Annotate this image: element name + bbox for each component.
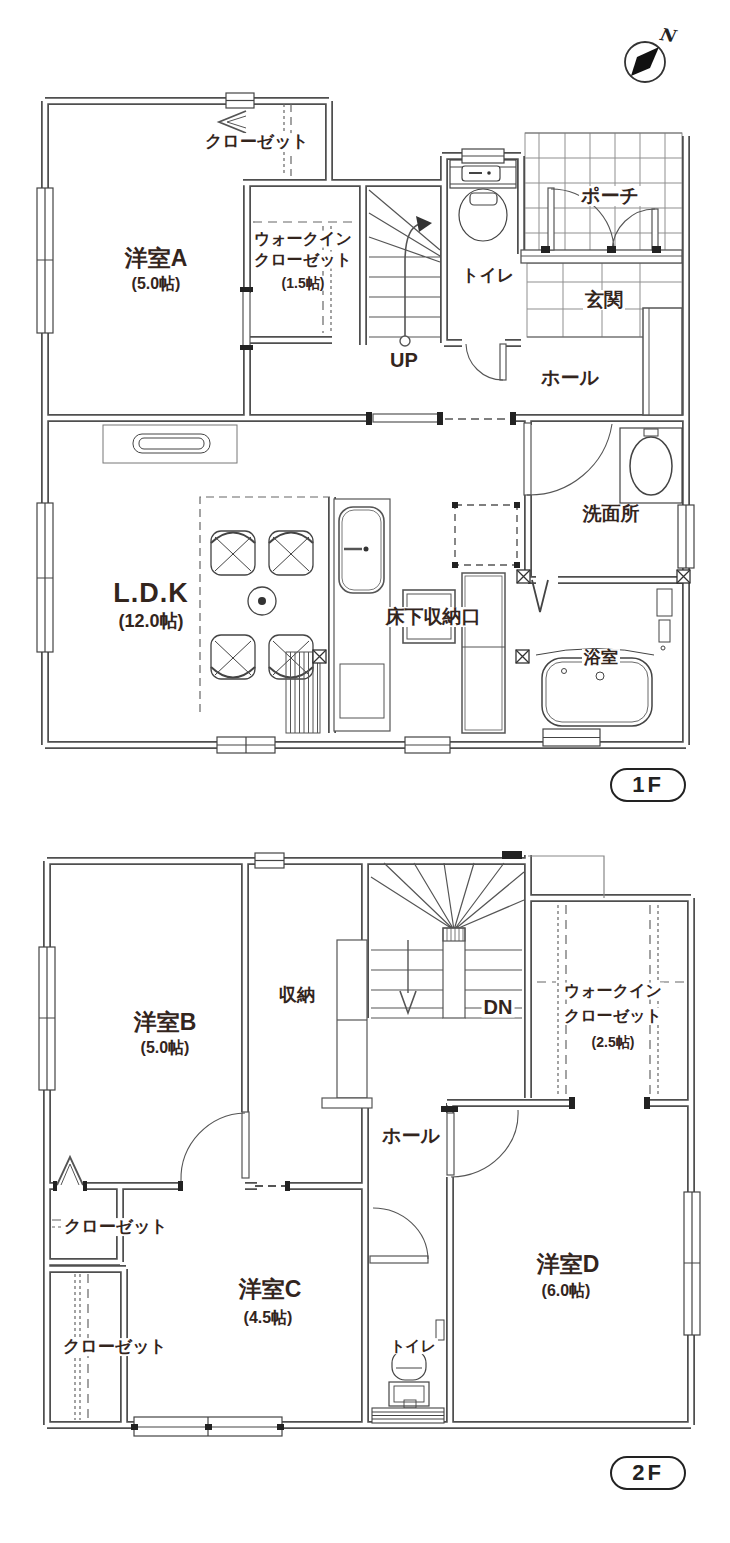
closet-bifold-1f [219,111,246,133]
yoshitsu-d-door [441,1106,518,1177]
tv-board [103,425,237,463]
toilet-door-1f [466,344,506,380]
label-bathroom: 浴室 [582,649,620,667]
north-label: N [658,24,677,46]
label-ldk: L.D.K [111,579,191,607]
label-yoshitsu-c-size: (4.5帖) [242,1310,295,1327]
roofline-2f [528,856,604,898]
toilet-fixture-1f [450,160,516,241]
closet-dashes-2f [52,1220,116,1420]
label-stairs-dn: DN [482,997,515,1018]
label-storage-2f: 収納 [277,986,317,1005]
label-wic-1f-line1: ウォークイン [252,231,354,248]
ldk-sliding-door [366,412,516,425]
dining-set [200,497,330,712]
storage-cabinet-1f [462,573,505,733]
closet1-bifold-2f [57,1157,83,1185]
label-underfloor: 床下収納口 [384,607,483,627]
label-closet-1f: クローゼット [203,133,311,151]
label-entrance: 玄関 [583,290,625,310]
kitchen-counter [334,499,390,731]
label-hall-2f: ホール [380,1126,442,1146]
fridge-space [452,502,520,568]
wic-dashes-2f [537,905,688,1096]
floorplan-page: クローゼット 洋室A (5.0帖) ウォークイン クローゼット (1.5帖) U… [0,0,730,1543]
label-closet1-2f: クローゼット [62,1218,170,1236]
compass-icon [625,42,665,82]
stairs-wall-cap-2f [502,851,522,859]
label-yoshitsu-c: 洋室C [237,1277,304,1301]
label-toilet-2f: トイレ [388,1338,438,1354]
label-closet2-2f: クローゼット [61,1338,169,1356]
label-yoshitsu-b-size: (5.0帖) [139,1040,192,1057]
label-wic-2f-size: (2.5帖) [590,1035,637,1050]
label-wic-1f-size: (1.5帖) [280,276,327,291]
label-wic-2f-line2: クローゼット [562,1008,664,1025]
storage-shelf-2f [322,940,372,1108]
label-yoshitsu-a-size: (5.0帖) [130,276,183,293]
kitchen-stripes [286,652,320,733]
label-yoshitsu-d-size: (6.0帖) [540,1283,593,1300]
floor1-badge: 1F [610,768,686,802]
chair [211,635,255,679]
label-yoshitsu-b: 洋室B [132,1010,199,1034]
label-washroom: 洗面所 [581,504,642,524]
label-toilet-1f: トイレ [460,267,516,285]
label-yoshitsu-a: 洋室A [123,246,190,270]
label-porch: ポーチ [579,186,641,206]
label-wic-2f-line1: ウォークイン [562,983,664,1000]
wic-door-caps-2f [569,1097,650,1109]
label-ldk-size: (12.0帖) [116,612,185,631]
washroom-vanity [620,428,682,503]
chair [269,531,313,575]
toilet-window-2f [372,1408,444,1423]
toilet-door-2f [370,1208,428,1263]
stairs-up-1f [369,190,440,346]
yoshitsu-b-door [181,1112,249,1181]
label-yoshitsu-d: 洋室D [535,1252,602,1276]
floor2-badge: 2F [610,1456,686,1490]
shoe-cabinet [527,308,682,415]
label-wic-1f-line2: クローゼット [252,252,354,269]
chair [211,531,255,575]
toilet-fixture-2f [389,1320,444,1408]
label-hall-1f: ホール [539,368,601,388]
label-stairs-up: UP [388,350,420,371]
washroom-door [524,423,612,495]
yoshitsu-a-door [243,291,250,349]
